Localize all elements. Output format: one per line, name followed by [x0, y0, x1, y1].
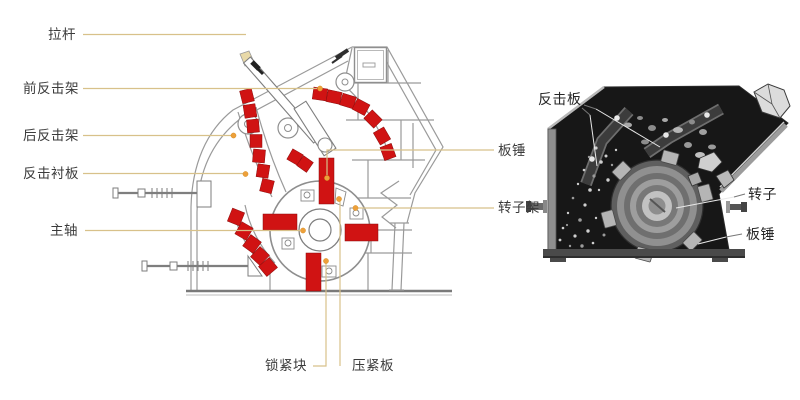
label-impact-liner-plate: 反击衬板 [23, 166, 79, 181]
label-pressing-plate: 压紧板 [352, 358, 394, 373]
label-rotor: 转子 [748, 187, 777, 203]
label-blow-bar: 板锤 [498, 143, 526, 158]
label-locking-block: 锁紧块 [265, 358, 307, 373]
impact-crusher-diagram-figure: 拉杆 前反击架 后反击架 反击衬板 主轴 板锤 转子架 锁紧块 压紧板 反击板 … [0, 0, 800, 400]
label-impact-plate: 反击板 [538, 92, 582, 108]
leader-blow-bar [327, 150, 494, 175]
left-diagram [113, 47, 452, 295]
label-tie-rod: 拉杆 [48, 27, 76, 42]
blow-bar-left [263, 214, 297, 230]
label-rotor-frame: 转子架 [498, 200, 540, 215]
label-rear-impact-frame: 后反击架 [23, 128, 79, 143]
label-front-impact-frame: 前反击架 [23, 80, 79, 96]
left-frame-wall [548, 129, 556, 250]
label-photo-blow-bar: 板锤 [746, 227, 775, 243]
blow-bar-right [345, 224, 378, 241]
label-main-shaft: 主轴 [50, 223, 78, 238]
feed-hopper [355, 48, 387, 83]
blow-bar-bottom [306, 253, 321, 291]
